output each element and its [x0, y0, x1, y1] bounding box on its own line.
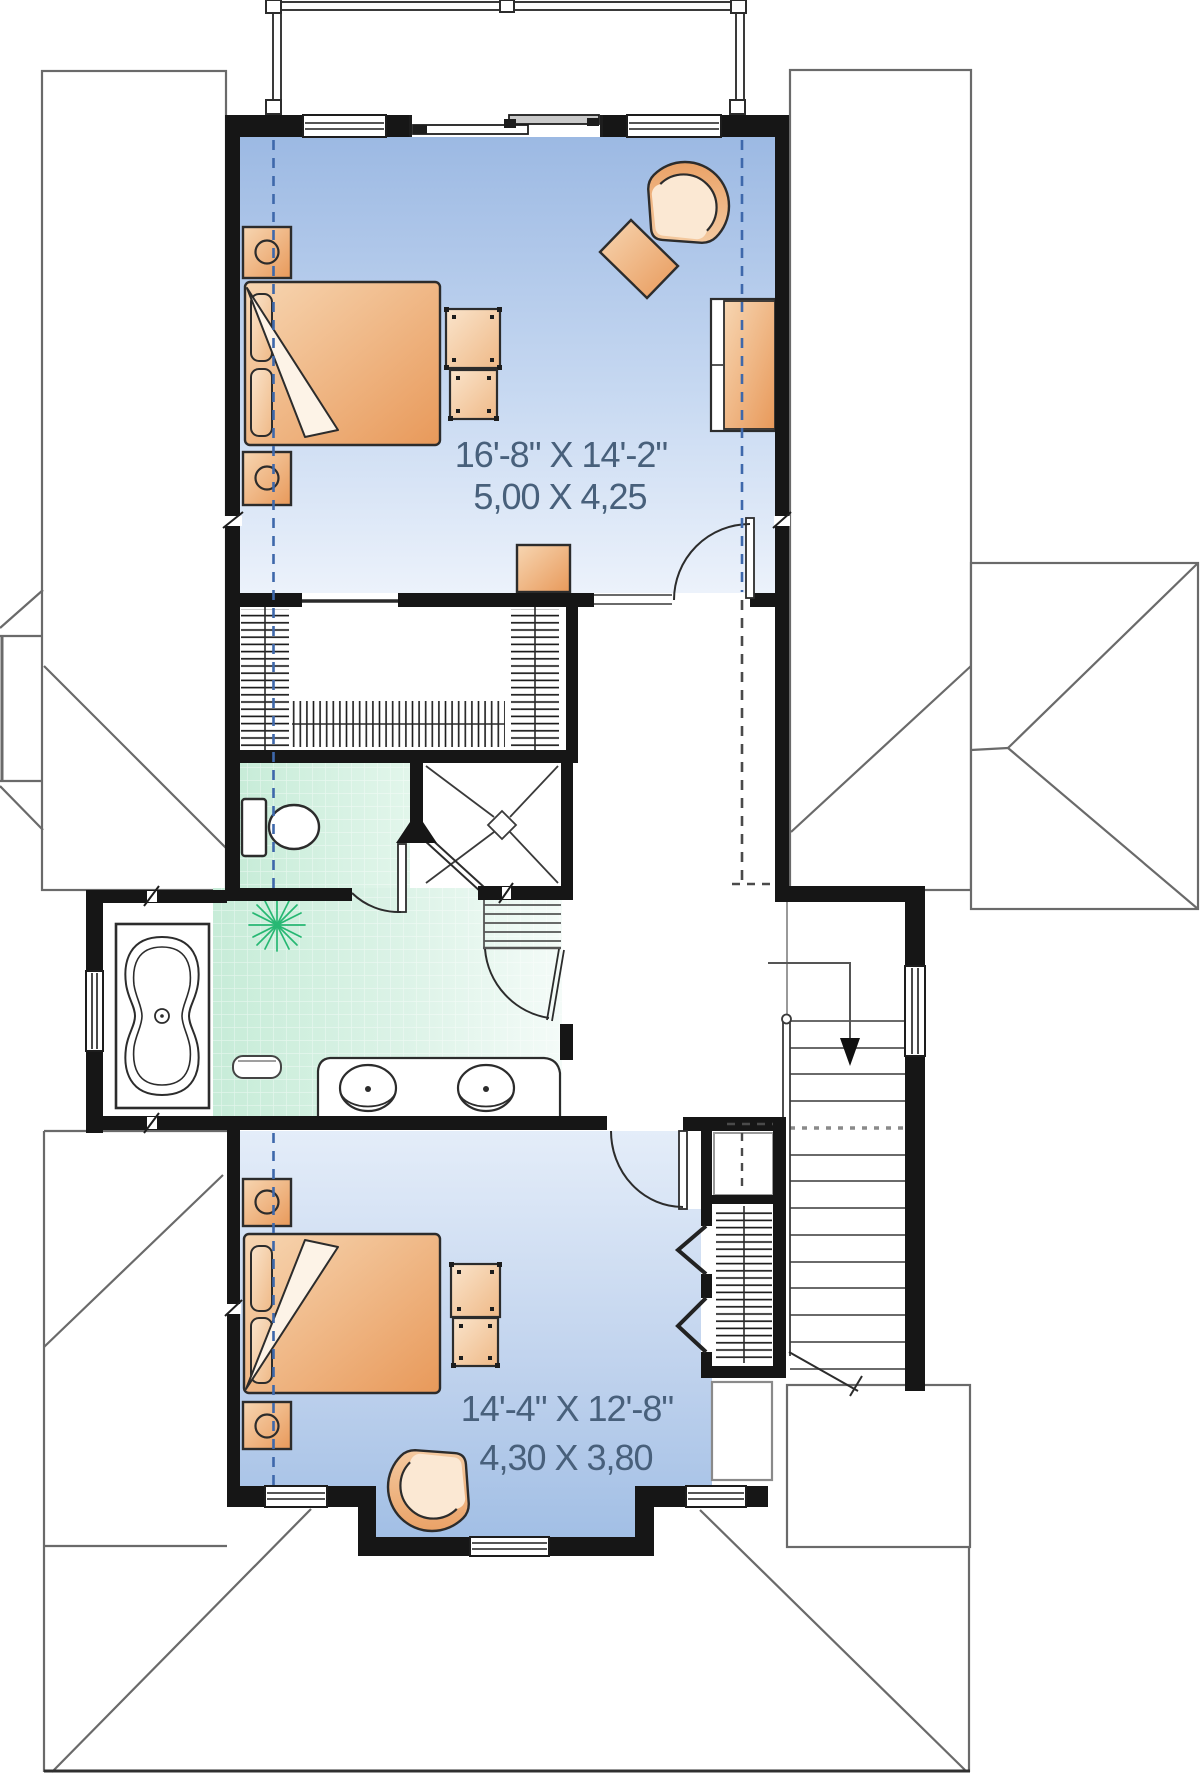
svg-text:5,00 X 4,25: 5,00 X 4,25	[473, 476, 646, 517]
svg-text:14'-4" X 12'-8": 14'-4" X 12'-8"	[461, 1388, 674, 1429]
svg-text:4,30 X 3,80: 4,30 X 3,80	[479, 1437, 652, 1478]
svg-text:16'-8" X 14'-2": 16'-8" X 14'-2"	[455, 434, 668, 475]
